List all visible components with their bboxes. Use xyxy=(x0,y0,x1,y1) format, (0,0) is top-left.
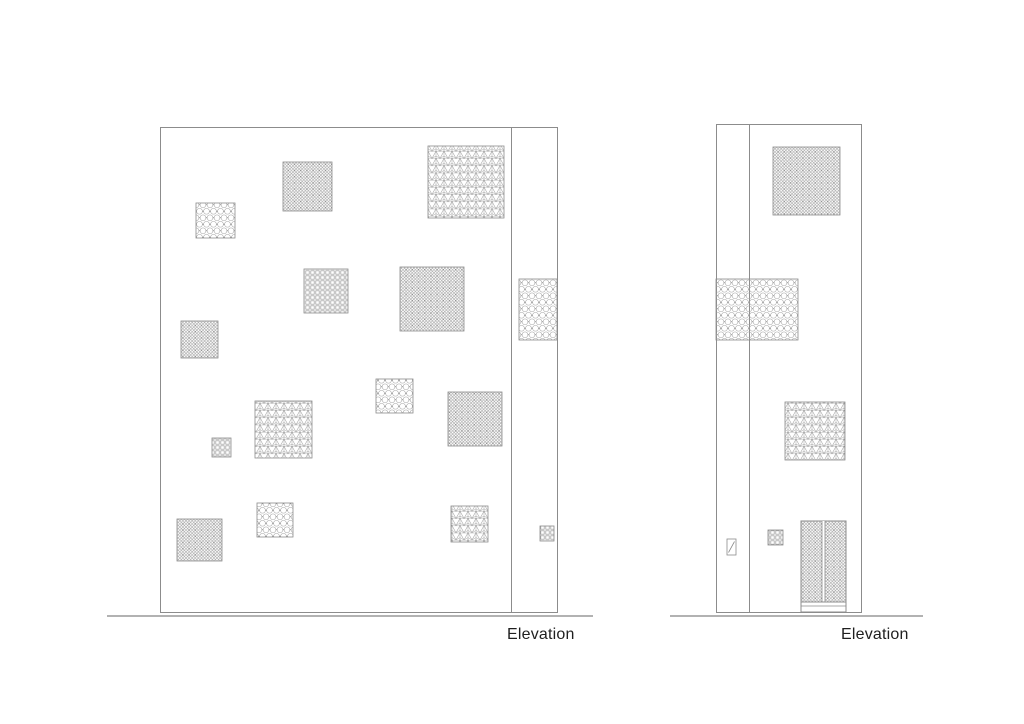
screen-panel-shippo xyxy=(773,147,840,215)
screen-panel-hexagon xyxy=(196,203,235,238)
screen-panel-hexagon xyxy=(376,379,413,413)
screen-panel-grid xyxy=(304,269,348,313)
side-elevation xyxy=(670,124,923,616)
screen-panel-asanoha xyxy=(428,146,504,218)
door-threshold xyxy=(801,602,846,612)
screen-panel-asanoha xyxy=(451,506,488,542)
screen-panel-grid xyxy=(768,530,783,545)
front-elevation xyxy=(107,127,593,616)
screen-panel-shippo xyxy=(283,162,332,211)
screen-panel-grid xyxy=(212,438,231,457)
screen-panel-asanoha xyxy=(255,401,312,458)
screen-panel-shippo xyxy=(177,519,222,561)
screen-panel-hexagon xyxy=(716,279,798,340)
door-leaf-gap xyxy=(822,521,825,602)
screen-panel-hexagon xyxy=(257,503,293,537)
elevation-drawing xyxy=(0,0,1024,724)
screen-panel-shippo xyxy=(400,267,464,331)
elevation-label-front: Elevation xyxy=(507,626,575,643)
drawing-canvas: Elevation Elevation xyxy=(0,0,1024,724)
screen-panel-shippo xyxy=(181,321,218,358)
screen-panel-asanoha xyxy=(785,402,845,460)
screen-panel-shippo xyxy=(448,392,502,446)
screen-panel-hexagon xyxy=(519,279,557,340)
screen-panel-grid xyxy=(540,526,554,541)
elevation-label-side: Elevation xyxy=(841,626,909,643)
